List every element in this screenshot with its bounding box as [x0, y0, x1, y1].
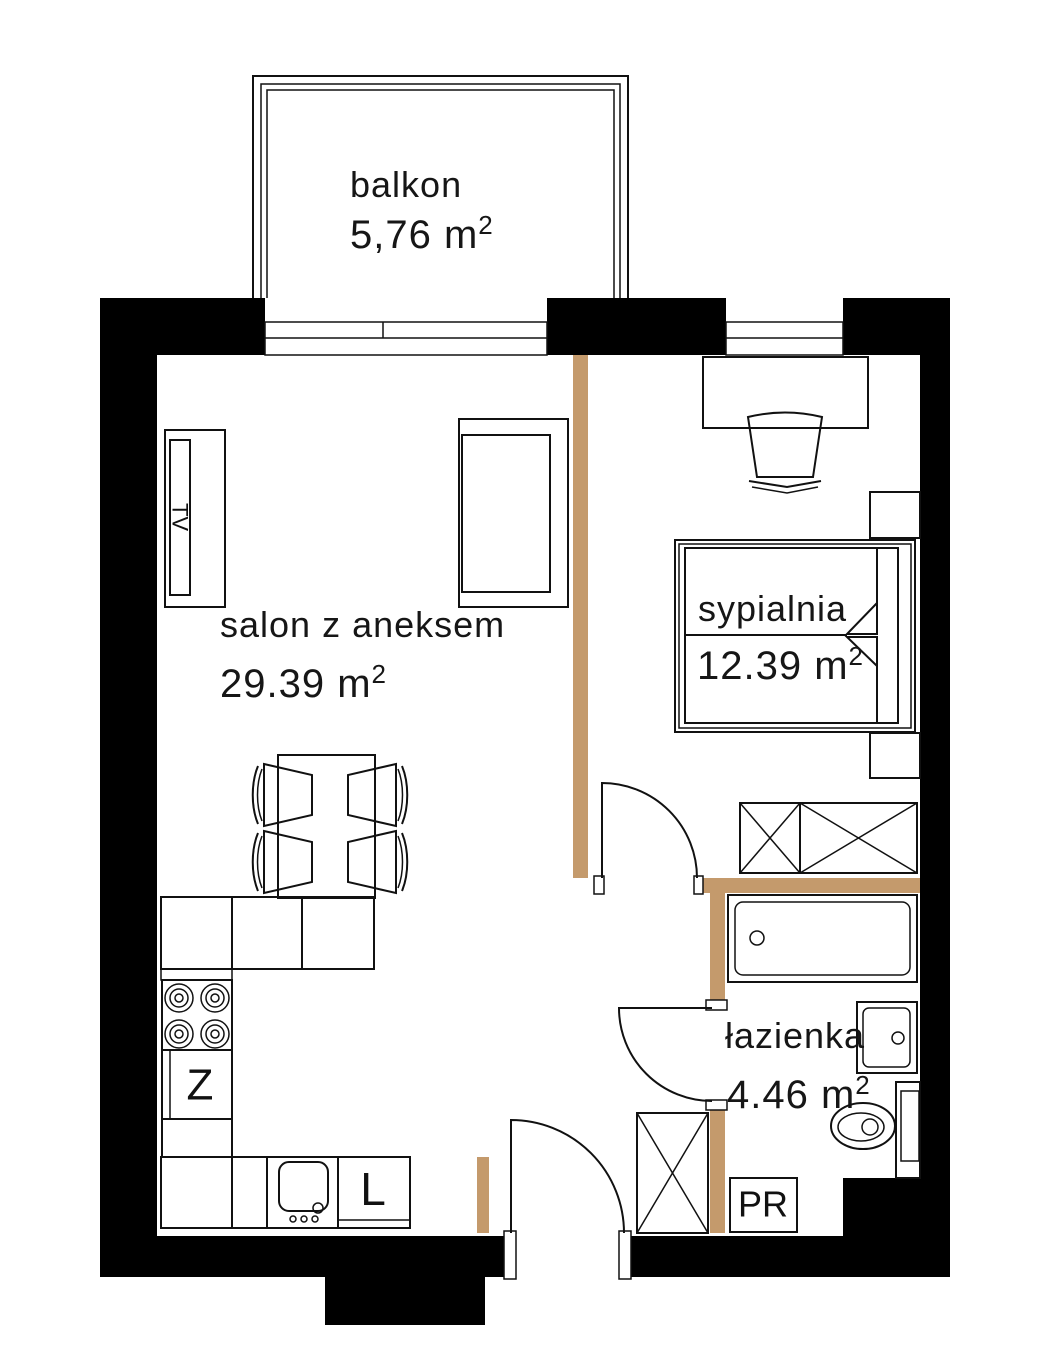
- kitchen: Z L: [161, 897, 410, 1228]
- entrance-door-leaf: [511, 1120, 624, 1233]
- stove-burner: [201, 984, 229, 1012]
- balcony-name: balkon: [350, 164, 462, 205]
- kitchen-counter-segment: [162, 1119, 232, 1157]
- bathroom-area-value: 4.46 m: [727, 1073, 855, 1117]
- bathroom-door: [619, 1000, 727, 1110]
- wall-top-middle: [547, 298, 726, 355]
- stove: [162, 980, 232, 1050]
- tv-label: TV: [168, 503, 193, 531]
- partition-bathroom-left-lower: [710, 1110, 725, 1233]
- desk-chair-base: [749, 481, 821, 487]
- bathroom-name: łazienka: [725, 1015, 865, 1056]
- bathtub: [728, 895, 917, 982]
- bedroom-door-jamb-right: [694, 876, 703, 894]
- kitchen-counter-edge: [161, 969, 232, 980]
- partition-living-bedroom: [573, 355, 588, 878]
- entrance-door: [504, 1120, 631, 1279]
- fridge: L: [338, 1163, 410, 1220]
- toilet-cistern-inner: [901, 1091, 919, 1161]
- washbasin: [857, 1002, 917, 1073]
- toilet-bowl-inner: [838, 1113, 884, 1141]
- dining-chair: [253, 831, 312, 893]
- bathtub-drain: [750, 931, 764, 945]
- bed-blanket-fold: [847, 603, 877, 634]
- dining-table: [278, 755, 375, 898]
- bedroom-door: [594, 783, 703, 894]
- living-room: TV salon z aneksem 29.39 m2: [165, 419, 568, 898]
- living-room-area: 29.39 m2: [220, 659, 387, 706]
- living-room-area-value: 29.39 m: [220, 662, 372, 706]
- bathroom-area: 4.46 m2: [727, 1070, 871, 1117]
- kitchen-sink-cabinet: Z: [162, 1050, 232, 1119]
- washbasin-counter: [857, 1002, 917, 1073]
- nightstand: [870, 733, 920, 778]
- stove-burner: [165, 1020, 193, 1048]
- washbasin-drain: [892, 1032, 904, 1044]
- exterior-walls: [100, 298, 950, 1325]
- dishwasher-button: [301, 1216, 307, 1222]
- hallway: [637, 1113, 708, 1233]
- desk-chair-base: [752, 487, 818, 493]
- partition-bathroom-top: [702, 878, 920, 893]
- double-bed: sypialnia 12.39 m2: [675, 540, 915, 732]
- partition-entry-stub: [477, 1157, 489, 1233]
- bedroom-wardrobe: [740, 803, 917, 873]
- bedroom-door-jamb-left: [594, 876, 604, 894]
- hall-wardrobe: [637, 1113, 708, 1233]
- stove-burner: [165, 984, 193, 1012]
- bedroom-area-sup: 2: [849, 641, 864, 671]
- dining-chair: [348, 831, 407, 893]
- desk: [703, 357, 868, 428]
- bedroom-area-value: 12.39 m: [697, 644, 849, 688]
- wall-top-left: [100, 298, 265, 355]
- balcony-window: [265, 322, 547, 355]
- bathroom-door-leaf: [619, 1008, 712, 1101]
- dining-chair: [253, 764, 312, 826]
- floor-plan: balkon 5,76 m2: [0, 0, 1040, 1346]
- desk-chair-seat: [748, 413, 822, 478]
- bedroom-area: 12.39 m2: [697, 641, 864, 688]
- bathroom-area-sup: 2: [855, 1070, 870, 1100]
- dishwasher-button: [290, 1216, 296, 1222]
- entrance-door-jamb-left: [504, 1231, 516, 1279]
- washing-machine-label: PR: [738, 1184, 788, 1225]
- wall-bottom-step: [325, 1277, 485, 1325]
- balcony-area-value: 5,76 m: [350, 213, 478, 257]
- balcony: balkon 5,76 m2: [253, 76, 628, 298]
- fridge-label: L: [360, 1163, 386, 1215]
- wall-bottom-middle: [630, 1236, 843, 1277]
- dining-chair: [348, 764, 407, 826]
- wall-bottom-left: [100, 1236, 506, 1277]
- washing-machine: PR: [730, 1178, 797, 1232]
- dishwasher-button: [312, 1216, 318, 1222]
- toilet-bowl-outer: [831, 1103, 895, 1149]
- living-room-name: salon z aneksem: [220, 604, 505, 645]
- wall-right: [920, 298, 950, 1178]
- partition-bathroom-left-upper: [710, 893, 725, 1002]
- sofa: [459, 419, 568, 607]
- stove-burner: [201, 1020, 229, 1048]
- dishwasher: [279, 1162, 328, 1222]
- living-room-area-sup: 2: [372, 659, 387, 689]
- nightstand: [870, 492, 920, 538]
- balcony-area-sup: 2: [478, 210, 493, 240]
- bedroom: sypialnia 12.39 m2: [675, 357, 920, 873]
- wall-bottom-right-corner: [843, 1178, 950, 1277]
- wardrobe-body: [740, 803, 917, 873]
- desk-chair: [748, 413, 822, 494]
- toilet-cistern-outer: [896, 1082, 920, 1178]
- bathtub-inner: [735, 902, 910, 975]
- doors: [504, 783, 727, 1279]
- bedroom-window: [726, 322, 843, 355]
- bedroom-door-leaf: [602, 783, 697, 878]
- sofa-seat: [462, 435, 550, 592]
- wall-left: [100, 298, 157, 1277]
- balcony-area: 5,76 m2: [350, 210, 494, 257]
- entrance-door-jamb-right: [619, 1231, 631, 1279]
- kitchen-counter-top-row: [161, 897, 374, 969]
- bathtub-outer: [728, 895, 917, 982]
- washbasin-bowl: [863, 1008, 910, 1067]
- bedroom-name: sypialnia: [698, 588, 847, 629]
- sink-label: Z: [187, 1061, 214, 1110]
- toilet-drain: [862, 1119, 878, 1135]
